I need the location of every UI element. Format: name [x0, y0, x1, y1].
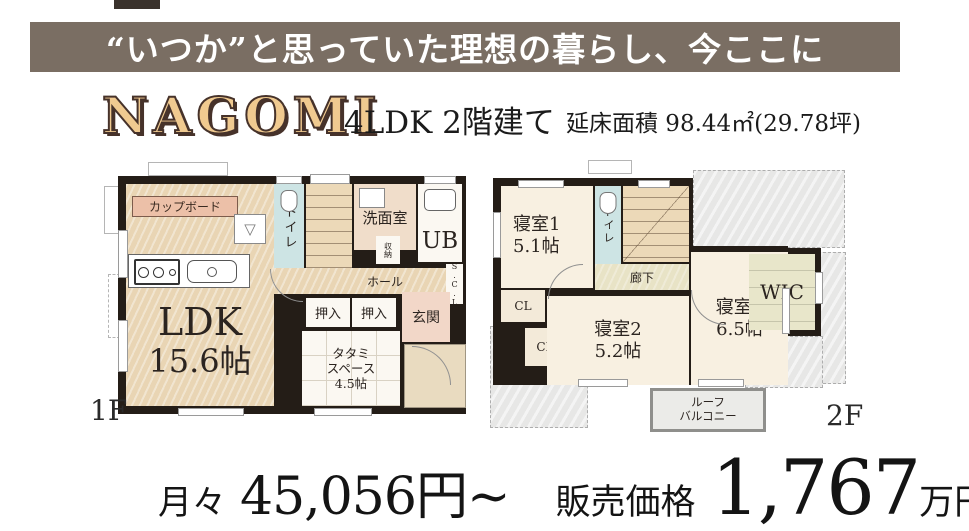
- kitchen-counter: [128, 254, 250, 288]
- toilet-icon: [281, 190, 298, 212]
- room-ldk-label: LDK 15.6帖: [126, 302, 274, 379]
- roof-balcony-label: ルーフ バルコニー: [679, 396, 736, 424]
- toilet-icon: [600, 192, 617, 214]
- window: [118, 320, 128, 372]
- window: [178, 408, 244, 416]
- room-washroom-label: 洗面室: [362, 207, 407, 228]
- window: [578, 379, 628, 387]
- window: [310, 174, 350, 184]
- pricing-row: 月々 45,056円~ 販売価格 1,767 万円: [158, 443, 969, 531]
- room-entrance: 玄関: [402, 292, 450, 342]
- eave-box: [148, 162, 228, 176]
- room-tatami: タタミ スペース 4.5帖: [302, 331, 400, 406]
- room-toilet-1f: トイレ: [274, 184, 304, 270]
- building-type: 4LDK 2階建て: [344, 97, 555, 142]
- window: [424, 176, 456, 184]
- sink-drain-icon: [207, 267, 217, 277]
- sink-icon: [187, 260, 237, 283]
- floorplan-2f: 寝室1 5.1帖 トイレ 廊下 CL CL 寝室2 5.2帖 寝室3 6.5帖 …: [488, 168, 854, 432]
- tatami-line2: スペース: [327, 361, 376, 376]
- room-storage: 収納: [376, 236, 400, 264]
- tatami-line3: 4.5帖: [327, 376, 376, 391]
- room-ldk-name: LDK: [126, 302, 274, 344]
- stair-lines: [623, 186, 689, 262]
- room-toilet-2f: トイレ: [595, 186, 621, 264]
- eave-box: [588, 160, 632, 174]
- room-ldk-size: 15.6帖: [126, 344, 274, 379]
- nagomi-logo: NAGOMI: [102, 86, 382, 145]
- room-corridor: 廊下: [595, 264, 689, 290]
- window: [782, 288, 790, 334]
- window: [118, 230, 128, 278]
- room-closet-1: 押入: [306, 298, 350, 327]
- room-hall-label: ホール: [367, 273, 403, 290]
- range-hood-icon: ▽: [234, 214, 266, 244]
- stairs-2f: [623, 186, 689, 262]
- room-cl-1: CL: [501, 290, 545, 322]
- window: [815, 272, 823, 304]
- balcony-line1: ルーフ: [679, 396, 736, 410]
- room-tatami-label: タタミ スペース 4.5帖: [327, 346, 376, 391]
- room-bedroom1-label: 寝室1 5.1帖: [513, 214, 560, 257]
- window: [276, 176, 302, 184]
- price-value: 1,767: [712, 443, 920, 531]
- bedroom1-name: 寝室1: [513, 214, 560, 236]
- burner-icon: [153, 267, 164, 278]
- bedroom2-name: 寝室2: [594, 319, 641, 341]
- tatami-line1: タタミ: [327, 346, 376, 361]
- room-bedroom2: 寝室2 5.2帖: [547, 296, 689, 385]
- window: [518, 180, 564, 188]
- top-left-mark: [114, 0, 160, 9]
- floor2-label: 2F: [826, 399, 863, 432]
- room-closet-2: 押入: [352, 298, 396, 327]
- roof-balcony: ルーフ バルコニー: [650, 388, 766, 432]
- monthly-value: 45,056円~: [240, 454, 510, 529]
- burner-icon: [169, 269, 176, 276]
- burner-icon: [138, 267, 149, 278]
- bedroom1-size: 5.1帖: [513, 236, 560, 258]
- headline-banner: “いつか”と思っていた理想の暮らし、今ここに: [30, 22, 900, 72]
- headline-text: “いつか”と思っていた理想の暮らし、今ここに: [106, 23, 824, 71]
- floor-area-text: 延床面積 98.44㎡(29.78坪): [566, 104, 861, 138]
- room-unit-bath: UB: [418, 184, 462, 262]
- monthly-label: 月々: [158, 475, 226, 524]
- balcony-line2: バルコニー: [679, 410, 736, 424]
- flyer-page: “いつか”と思っていた理想の暮らし、今ここに NAGOMI 4LDK 2階建て …: [0, 0, 969, 531]
- bedroom2-size: 5.2帖: [594, 341, 641, 363]
- floorplan-1f: LDK 15.6帖 カップボード ▽ トイレ 洗面室 U: [118, 170, 470, 422]
- window: [314, 408, 372, 416]
- stairs-1f: [306, 184, 352, 270]
- room-bedroom2-label: 寝室2 5.2帖: [594, 319, 641, 362]
- price-label: 販売価格: [556, 474, 696, 525]
- cupboard-strip: カップボード: [132, 196, 238, 217]
- window: [698, 379, 744, 387]
- stove-icon: [134, 259, 180, 285]
- price-unit: 万円: [919, 474, 969, 525]
- room-unit-bath-label: UB: [422, 228, 458, 254]
- window: [493, 212, 501, 258]
- roof-area: [693, 170, 845, 248]
- floor1-label: 1F: [90, 394, 127, 427]
- washstand-icon: [359, 188, 385, 208]
- bathtub-icon: [424, 189, 456, 211]
- window: [638, 180, 670, 188]
